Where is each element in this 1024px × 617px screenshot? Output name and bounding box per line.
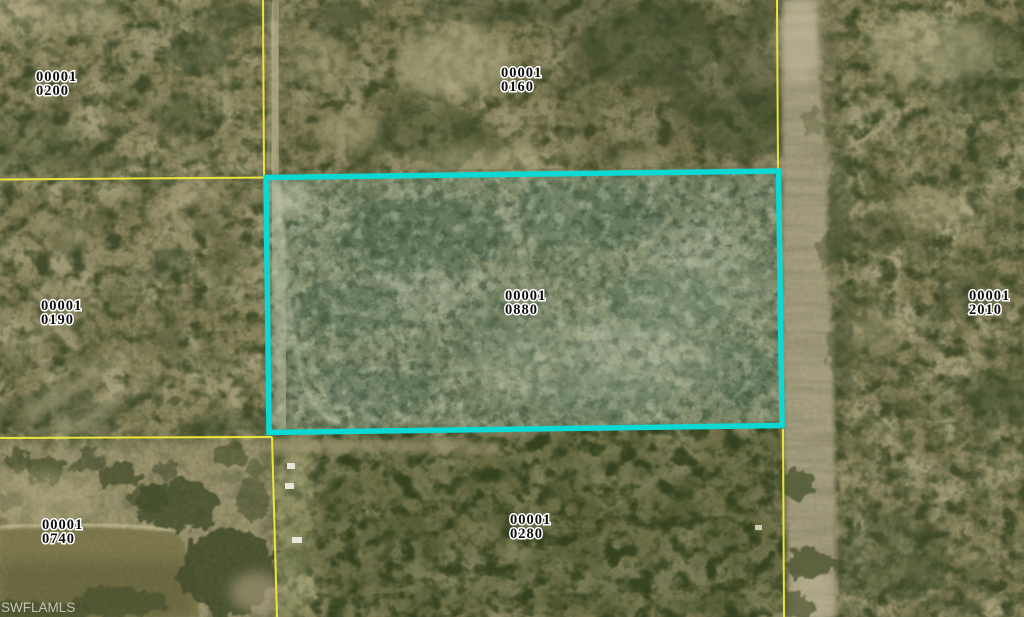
svg-text:0280: 0280 (510, 526, 543, 542)
svg-text:2010: 2010 (969, 302, 1002, 318)
svg-text:0200: 0200 (36, 83, 69, 99)
svg-text:SWFLAMLS: SWFLAMLS (1, 600, 75, 615)
svg-text:0190: 0190 (41, 312, 74, 328)
svg-text:0740: 0740 (42, 531, 75, 547)
svg-text:0880: 0880 (505, 302, 538, 318)
svg-text:0160: 0160 (501, 79, 534, 95)
